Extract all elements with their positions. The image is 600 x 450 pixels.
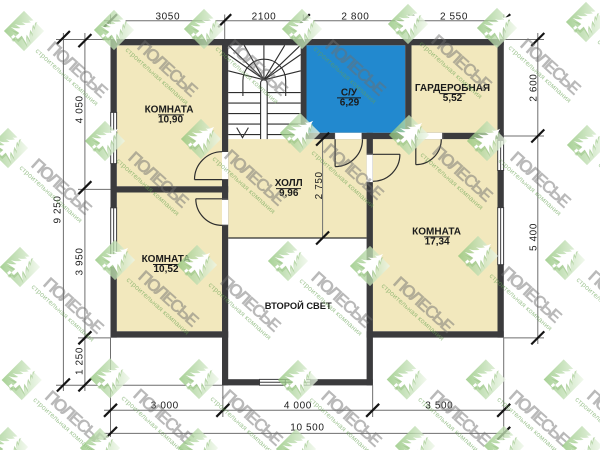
svg-text:2 750: 2 750 — [314, 171, 325, 199]
svg-text:4 050: 4 050 — [75, 95, 86, 123]
svg-text:10,90: 10,90 — [158, 115, 183, 126]
svg-text:1 250: 1 250 — [75, 347, 86, 375]
svg-text:17,34: 17,34 — [425, 237, 450, 248]
svg-text:2 550: 2 550 — [440, 12, 468, 23]
svg-text:6,29: 6,29 — [340, 98, 360, 109]
svg-text:3 950: 3 950 — [75, 247, 86, 275]
svg-text:2100: 2100 — [252, 12, 277, 23]
svg-text:3050: 3050 — [155, 12, 180, 23]
svg-text:2 800: 2 800 — [341, 12, 369, 23]
svg-text:5,52: 5,52 — [443, 93, 463, 104]
svg-text:5 400: 5 400 — [529, 223, 540, 251]
